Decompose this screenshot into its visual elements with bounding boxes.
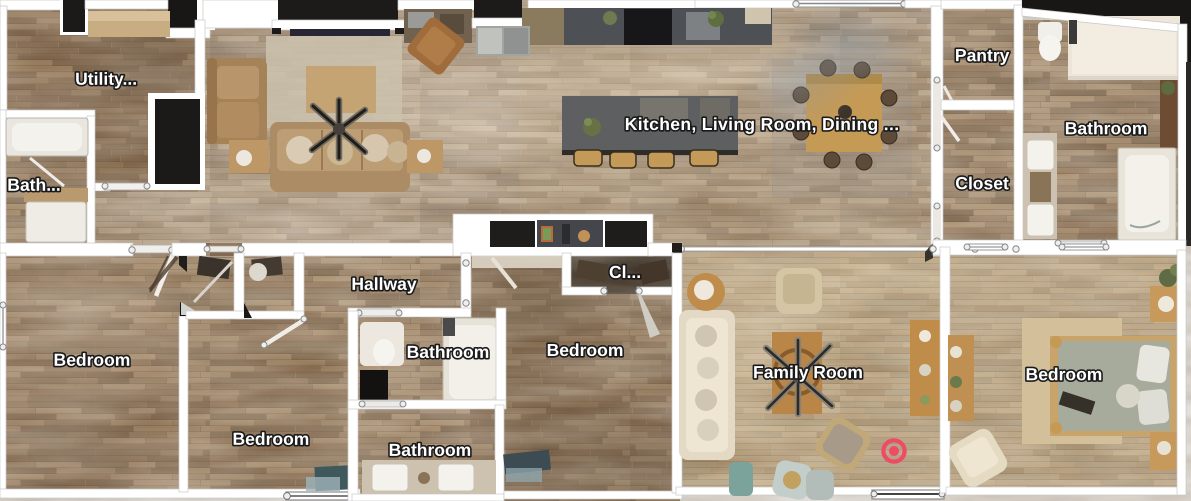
svg-text:Kitchen, Living Room, Dining .: Kitchen, Living Room, Dining ... (625, 114, 900, 134)
svg-text:Hallway: Hallway (351, 274, 416, 294)
svg-text:Bedroom: Bedroom (54, 350, 131, 370)
svg-text:Family Room: Family Room (753, 362, 863, 382)
svg-text:Utility...: Utility... (75, 69, 137, 89)
svg-text:Bathroom: Bathroom (407, 342, 490, 362)
svg-text:Bathroom: Bathroom (389, 440, 472, 460)
svg-text:Bedroom: Bedroom (547, 340, 624, 360)
svg-text:Closet: Closet (955, 173, 1009, 193)
svg-text:Pantry: Pantry (955, 45, 1010, 65)
svg-text:Bedroom: Bedroom (233, 429, 310, 449)
svg-text:Bathroom: Bathroom (1065, 118, 1148, 138)
svg-text:Bath...: Bath... (7, 175, 60, 195)
svg-text:Bedroom: Bedroom (1026, 364, 1103, 384)
svg-text:Cl...: Cl... (609, 262, 641, 282)
